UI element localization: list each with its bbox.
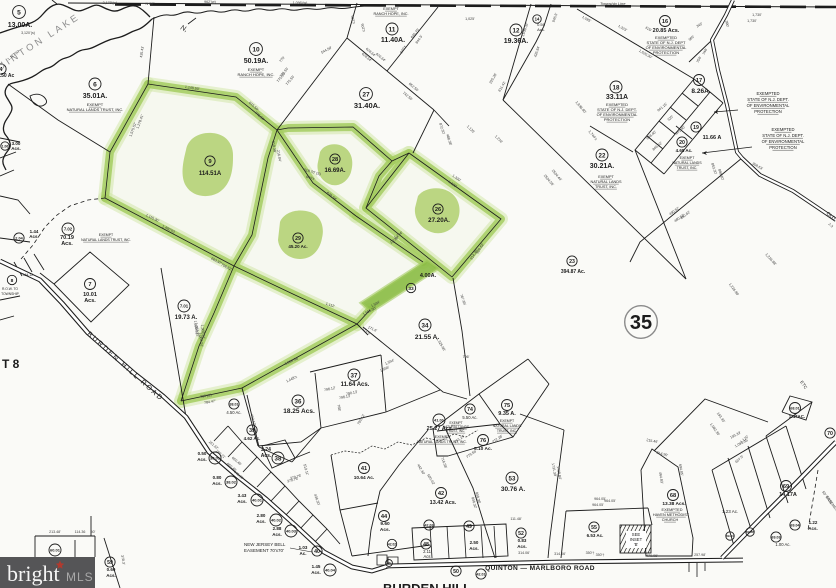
svg-text:38.01: 38.01 [230,402,239,406]
svg-text:23: 23 [569,259,575,265]
svg-text:28: 28 [332,157,338,163]
svg-text:27: 27 [362,92,370,99]
svg-text:2.50: 2.50 [470,540,479,545]
svg-text:0.80: 0.80 [213,475,222,480]
svg-text:41: 41 [361,466,367,472]
svg-text:1.00 Ac.: 1.00 Ac. [775,542,790,547]
svg-text:PROTECTION: PROTECTION [769,145,796,150]
svg-text:Acs.: Acs. [106,573,116,578]
svg-text:2.88: 2.88 [273,526,282,531]
svg-text:9.35 A.: 9.35 A. [498,411,516,417]
svg-text:111.48': 111.48' [510,517,521,521]
svg-text:213.48': 213.48' [49,530,61,534]
svg-text:52: 52 [518,531,524,537]
svg-text:4.62 Ac.: 4.62 Ac. [244,436,261,441]
svg-text:962'(w): 962'(w) [204,0,216,4]
svg-text:N 88°: N 88° [145,2,155,6]
svg-text:29: 29 [295,236,301,242]
svg-text:164.12: 164.12 [23,273,33,277]
svg-text:37: 37 [351,372,358,379]
svg-text:44: 44 [381,514,388,520]
svg-text:Acs.: Acs. [537,27,545,32]
svg-text:EXEMPT: EXEMPT [99,233,114,237]
svg-text:38: 38 [275,455,282,462]
svg-text:BURDEN HILL: BURDEN HILL [383,581,471,588]
svg-text:NATURAL LANDS TRUST, INC.: NATURAL LANDS TRUST, INC. [81,238,131,242]
svg-text:CHURCH: CHURCH [662,518,679,522]
svg-text:964.05': 964.05' [592,503,604,507]
svg-text:EASEMENT 70'x70': EASEMENT 70'x70' [244,548,284,553]
svg-text:6.53 Ac.: 6.53 Ac. [587,533,604,538]
svg-text:11.40A.: 11.40A. [381,37,405,44]
svg-text:69.01: 69.01 [726,534,734,538]
svg-text:2.80: 2.80 [257,513,266,518]
svg-text:17: 17 [696,78,702,84]
svg-text:350'†: 350'† [586,551,595,555]
svg-text:Acs.: Acs. [237,499,247,504]
svg-text:10: 10 [252,47,260,54]
svg-text:RANCH HOPE, INC.: RANCH HOPE, INC. [373,12,408,16]
svg-text:14: 14 [535,17,540,22]
svg-text:45.20 Ac.: 45.20 Ac. [288,244,307,249]
svg-text:60.01: 60.01 [50,548,61,553]
svg-text:PROTECTION: PROTECTION [754,109,781,114]
svg-text:0.83: 0.83 [518,538,527,543]
svg-text:27.20A.: 27.20A. [428,217,450,224]
svg-text:Acs.: Acs. [261,453,272,459]
svg-text:Acs.: Acs. [212,481,222,486]
svg-text:EXEMPT: EXEMPT [598,175,614,179]
svg-text:STATE OF N.J. DEPT.: STATE OF N.J. DEPT. [762,133,804,138]
svg-text:Acs.: Acs. [311,570,321,575]
svg-text:55: 55 [591,525,597,531]
svg-text:46: 46 [387,561,391,565]
svg-text:114.51A: 114.51A [199,171,222,177]
svg-text:16: 16 [662,19,668,25]
svg-text:RANCH HOPE, INC.: RANCH HOPE, INC. [238,72,275,77]
svg-text:69.03: 69.03 [772,535,781,539]
svg-text:NATURAL LANDS: NATURAL LANDS [493,424,522,428]
svg-text:42.02: 42.02 [388,542,396,546]
svg-text:1.06: 1.06 [2,144,9,148]
svg-text:bright: bright [7,561,60,586]
svg-text:HAVEN METHODIST: HAVEN METHODIST [653,513,690,517]
svg-text:35.01A.: 35.01A. [83,93,108,100]
svg-text:20: 20 [679,140,685,146]
svg-text:1.23 Ac.: 1.23 Ac. [722,509,738,514]
svg-text:EXEMPTED: EXEMPTED [662,508,683,512]
svg-text:5.10 Ac.: 5.10 Ac. [474,446,492,452]
svg-text:68: 68 [670,493,676,499]
svg-text:40.02: 40.02 [271,518,282,523]
svg-text:4.50 Ac.: 4.50 Ac. [226,410,241,415]
svg-text:42.03: 42.03 [425,523,434,527]
svg-text:1.47AC.: 1.47AC. [789,414,806,419]
svg-text:EXEMPTED: EXEMPTED [771,127,794,132]
svg-text:70: 70 [827,431,833,437]
svg-text:350'†: 350'† [596,553,605,557]
svg-text:1,025': 1,025' [465,17,475,21]
svg-text:22: 22 [599,152,606,159]
svg-text:1.22: 1.22 [809,520,818,525]
svg-text:STATE OF N.J. DEPT.: STATE OF N.J. DEPT. [747,97,789,102]
svg-text:3,120'(s): 3,120'(s) [21,31,35,35]
svg-text:40: 40 [314,549,320,555]
svg-text:TRUST, INC.: TRUST, INC. [497,429,517,433]
svg-text:31.40A.: 31.40A. [354,101,380,110]
svg-text:2,178'(w): 2,178'(w) [103,1,118,5]
svg-text:38.02: 38.02 [226,480,237,485]
svg-text:6: 6 [93,82,97,89]
svg-text:314.06': 314.06' [554,552,566,556]
svg-text:EXEMPT: EXEMPT [435,435,450,439]
svg-text:1.45: 1.45 [312,564,321,569]
svg-text:1,730': 1,730' [752,13,762,17]
svg-text:68.01: 68.01 [790,406,800,410]
svg-text:7.01: 7.01 [180,304,189,309]
svg-text:19.36A.: 19.36A. [504,38,529,45]
svg-text:257.98': 257.98' [694,553,706,557]
svg-text:2.04: 2.04 [15,236,23,240]
svg-text:Acs.: Acs. [197,457,207,462]
svg-text:7.02: 7.02 [64,227,73,232]
svg-text:TOWNSHIP: TOWNSHIP [1,292,20,296]
svg-text:Acs.: Acs. [11,146,21,151]
svg-text:PROTECTION: PROTECTION [653,50,679,55]
svg-text:18: 18 [613,84,620,91]
svg-text:T 8: T 8 [2,357,20,371]
svg-text:33.11A: 33.11A [606,94,628,101]
svg-text:4.65 Ac.: 4.65 Ac. [676,148,693,153]
svg-text:75: 75 [504,403,510,409]
svg-text:964.05': 964.05' [604,499,616,503]
svg-text:39: 39 [249,428,255,434]
svg-text:16.69A.: 16.69A. [324,168,345,174]
svg-text:Acs.: Acs. [29,234,39,239]
svg-text:Acs.: Acs. [469,546,479,551]
svg-text:9.60: 9.60 [380,521,390,527]
svg-text:4.00A.: 4.00A. [420,273,437,279]
svg-text:OF ENVIRONMENTAL: OF ENVIRONMENTAL [747,103,790,108]
svg-text:11.64 Acs.: 11.64 Acs. [341,382,370,388]
svg-text:314.06': 314.06' [518,551,530,555]
svg-text:8.26A.: 8.26A. [691,88,710,95]
svg-text:10.64 Ac.: 10.64 Ac. [354,475,375,481]
svg-text:50.19A.: 50.19A. [244,58,269,65]
svg-text:TRUST, INC.: TRUST, INC. [447,429,466,433]
svg-text:Acs: Acs [424,554,431,559]
svg-text:13.00A.: 13.00A. [8,22,33,29]
svg-text:NATURAL LANDS: NATURAL LANDS [590,180,621,184]
svg-text:Acs.: Acs. [256,519,266,524]
svg-text:42.01: 42.01 [477,572,486,576]
svg-text:11: 11 [389,27,396,34]
svg-text:50: 50 [453,569,459,575]
svg-text:69: 69 [783,484,789,490]
svg-text:470.06': 470.06' [646,554,658,558]
svg-text:Ac.: Ac. [299,551,306,556]
svg-text:30.21A.: 30.21A. [590,163,615,170]
svg-text:5.50 Ac.: 5.50 Ac. [462,415,477,420]
svg-text:21.55 A.: 21.55 A. [415,334,440,341]
svg-text:706': 706' [463,355,470,359]
svg-text:18.25 Acs.: 18.25 Acs. [283,408,315,415]
svg-text:1,096'(w): 1,096'(w) [293,1,308,5]
svg-text:3.43: 3.43 [238,493,247,498]
svg-text:Acs.: Acs. [380,527,390,533]
svg-text:36: 36 [295,398,302,405]
svg-text:0.60: 0.60 [107,567,116,572]
svg-text:1,730': 1,730' [747,19,757,23]
svg-text:40.04: 40.04 [325,568,336,573]
svg-text:TRUST, INC.: TRUST, INC. [595,185,617,189]
svg-text:13.38 Acs.: 13.38 Acs. [662,501,685,507]
svg-text:74: 74 [467,407,473,413]
svg-text:PROTECTION: PROTECTION [604,117,630,122]
svg-text:41.01: 41.01 [434,418,445,423]
svg-text:53: 53 [509,475,516,482]
svg-text:69.02: 69.02 [746,530,754,534]
svg-text:NEW JERSEY BELL: NEW JERSEY BELL [244,542,286,547]
svg-text:19: 19 [693,125,699,131]
svg-text:EXEMPT: EXEMPT [680,156,696,160]
svg-text:QUINTON — MARLBORO ROAD: QUINTON — MARLBORO ROAD [485,565,595,572]
svg-text:42: 42 [438,491,444,497]
svg-text:Acs.: Acs. [808,526,818,531]
svg-text:MLS: MLS [66,570,94,584]
svg-text:Township Line: Township Line [600,1,626,6]
svg-text:'B': 'B' [634,542,639,547]
svg-text:59: 59 [107,560,113,566]
svg-text:38.01: 38.01 [210,456,221,461]
svg-text:EXEMPT: EXEMPT [500,419,515,423]
svg-text:Acs.: Acs. [272,532,282,537]
svg-text:12: 12 [513,27,520,34]
svg-text:8: 8 [11,278,14,284]
svg-text:TRUST, INC.: TRUST, INC. [677,166,698,170]
svg-text:40.03: 40.03 [286,529,297,534]
svg-text:20.85 Acs.: 20.85 Acs. [653,28,680,34]
svg-text:40.01: 40.01 [252,498,263,503]
svg-text:48: 48 [423,542,429,548]
svg-text:1.03: 1.03 [299,545,308,550]
svg-text:69.04: 69.04 [791,523,800,527]
svg-text:EXEMPT: EXEMPT [383,7,399,11]
svg-text:35: 35 [630,312,652,334]
svg-text:7: 7 [88,282,91,288]
svg-text:30.76 A.: 30.76 A. [501,486,526,493]
svg-text:14.17A: 14.17A [779,492,797,498]
svg-text:Acs.: Acs. [84,298,96,304]
svg-text:0.50: 0.50 [198,451,207,456]
svg-text:50': 50' [91,530,96,534]
svg-text:34: 34 [422,322,429,329]
svg-text:Acs.: Acs. [517,544,527,549]
svg-text:Acs.: Acs. [61,241,73,247]
svg-text:R.O.W. TO: R.O.W. TO [2,287,18,291]
svg-text:114.36: 114.36 [75,530,86,534]
svg-text:5: 5 [17,10,21,17]
svg-text:EXEMPTED: EXEMPTED [756,91,779,96]
svg-text:49: 49 [466,524,472,530]
svg-text:OF ENVIRONMENTAL: OF ENVIRONMENTAL [762,139,805,144]
svg-text:13.42 Acs.: 13.42 Acs. [430,500,457,506]
svg-text:NATURAL LANDS TRUST, INC.: NATURAL LANDS TRUST, INC. [67,107,124,112]
svg-text:394.87 Ac.: 394.87 Ac. [561,269,586,275]
svg-text:33: 33 [408,286,414,292]
svg-text:NATURAL LANDS: NATURAL LANDS [672,161,702,165]
svg-text:76: 76 [480,438,486,444]
svg-text:26: 26 [435,207,441,213]
svg-text:.50 Ac: .50 Ac [0,73,14,79]
svg-text:11.66 A: 11.66 A [703,135,722,141]
